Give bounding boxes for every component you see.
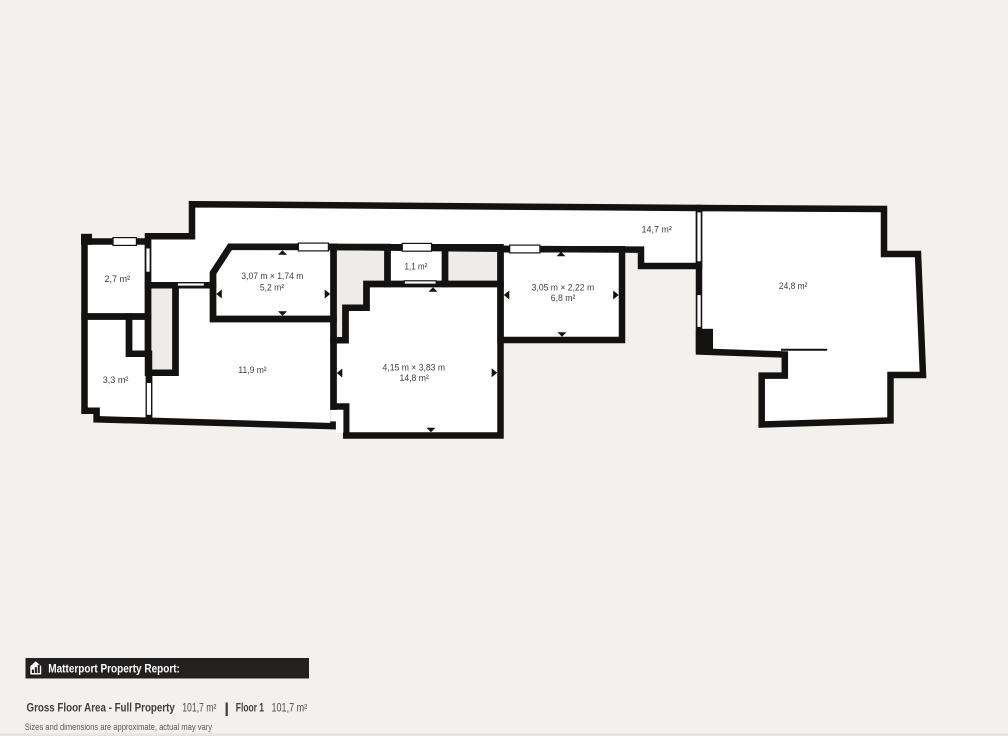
svg-text:Floor 1: Floor 1 — [236, 701, 265, 714]
svg-text:3,07 m × 1,74 m: 3,07 m × 1,74 m — [241, 271, 303, 281]
svg-text:101,7 m²: 101,7 m² — [182, 701, 216, 714]
svg-text:6,8 m²: 6,8 m² — [551, 293, 576, 303]
svg-text:2,7 m²: 2,7 m² — [105, 274, 131, 284]
svg-text:Sizes and dimensions are appro: Sizes and dimensions are approximate, ac… — [25, 722, 212, 733]
svg-text:1,1 m²: 1,1 m² — [405, 261, 428, 271]
svg-text:3,05 m × 2,22 m: 3,05 m × 2,22 m — [532, 283, 595, 293]
svg-text:14,8 m²: 14,8 m² — [400, 373, 429, 383]
svg-text:4,15 m × 3,83 m: 4,15 m × 3,83 m — [383, 363, 446, 373]
svg-text:Gross Floor Area - Full Proper: Gross Floor Area - Full Property — [27, 701, 176, 714]
svg-text:11,9 m²: 11,9 m² — [238, 365, 266, 375]
svg-text:Matterport Property Report:: Matterport Property Report: — [48, 661, 180, 675]
svg-text:5,2 m²: 5,2 m² — [260, 282, 284, 292]
svg-text:101,7 m²: 101,7 m² — [272, 701, 308, 714]
svg-text:3,3 m²: 3,3 m² — [103, 375, 129, 385]
svg-text:14,7 m²: 14,7 m² — [642, 225, 672, 235]
svg-text:24,8 m²: 24,8 m² — [779, 281, 808, 291]
